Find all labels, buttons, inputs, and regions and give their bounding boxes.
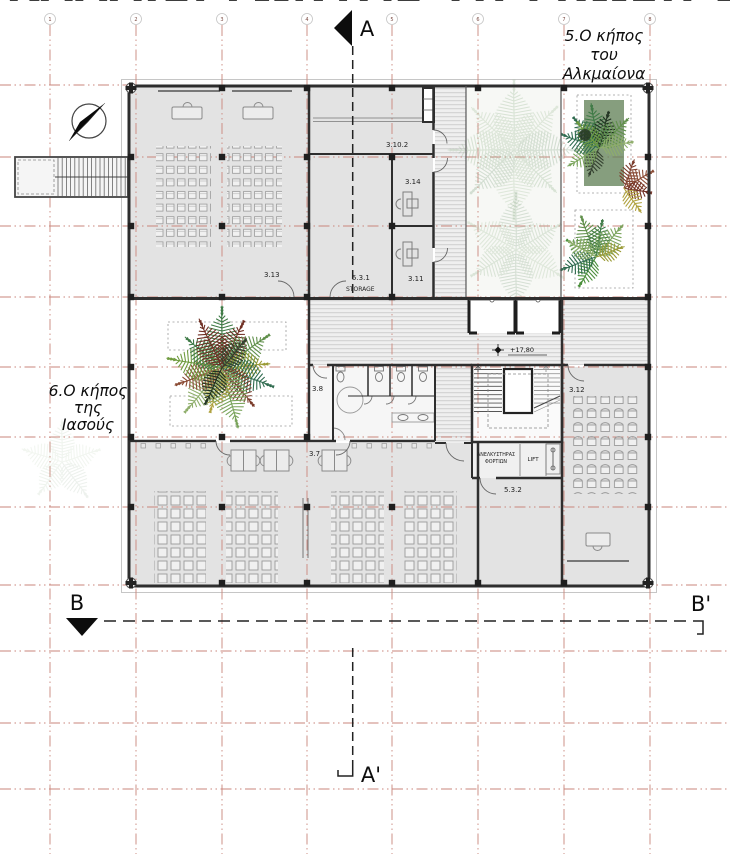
north-arrow: [69, 103, 106, 141]
grid-number-6: 6: [476, 17, 479, 23]
elevators: [469, 298, 560, 333]
seating-block: [156, 146, 211, 247]
group-table: [227, 450, 351, 471]
external-stair: [15, 157, 128, 197]
garden5-label-2: του: [590, 46, 618, 64]
storage-label: STORAGE: [346, 286, 375, 293]
room-312-label: 3.12: [569, 386, 585, 394]
grid-number-4: 4: [305, 17, 308, 23]
floor-plan-sheet: ΚΑΛΛΙΕΡΓΩΝΤΑΣ ΤΗ ΓΝΩΣΗ ΣΤΗΝ ΑΚΑΔΗΜΙΑ ΠΛΑ…: [0, 0, 730, 854]
room-531-label: 5.3.1: [352, 274, 370, 282]
garden6-label-2: της: [74, 399, 102, 417]
corridor2-hatch: [435, 365, 472, 443]
grid-number-3: 3: [220, 17, 223, 23]
seating-block: [331, 491, 384, 583]
freight-lift-label-2: ΦΟΡΤΙΩΝ: [485, 459, 507, 465]
section-b-label: B: [70, 591, 84, 615]
seating-block: [404, 491, 457, 583]
section-a-prime-label: A': [361, 763, 381, 787]
seating-block: [226, 491, 278, 583]
section-a-arrow: [334, 10, 352, 46]
garden5-label-1: 5.Ο κήπος: [565, 27, 644, 45]
room-532-fill: [478, 478, 562, 586]
room-3102-label: 3.10.2: [386, 141, 408, 149]
room-532-label: 5.3.2: [504, 486, 522, 494]
grid-number-8: 8: [648, 17, 651, 23]
level-value: +17,80: [510, 346, 534, 354]
grid-number-7: 7: [562, 17, 565, 23]
section-marker-b: B B': [66, 591, 711, 636]
room-3102-fill: [309, 86, 433, 154]
grid-number-1: 1: [48, 17, 51, 23]
room-311-label: 3.11: [408, 275, 424, 283]
section-b-prime-label: B': [691, 592, 711, 616]
garden6-label-1: 6.Ο κήπος: [49, 382, 128, 400]
section-b-arrow: [66, 618, 98, 636]
grid-number-2: 2: [134, 17, 137, 23]
garden5-label-3: Αλκμαίονα: [562, 65, 646, 83]
seating-block: [154, 491, 206, 583]
floor-plan-svg: 1 2 3 4 5 6 7 8: [0, 0, 730, 854]
room-38-label: 3.8: [312, 385, 323, 393]
room-314-label: 3.14: [405, 178, 421, 186]
room-37-label: 3.7: [309, 450, 320, 458]
grid-number-5: 5: [390, 17, 393, 23]
section-a-label: A: [360, 17, 375, 41]
room-313-label: 3.13: [264, 271, 280, 279]
seating-block: [227, 146, 282, 247]
toilets-fill: [311, 365, 435, 441]
lift-label: LIFT: [527, 457, 539, 463]
room-531-fill: [309, 154, 392, 297]
freight-lift-label-1: ΑΝΕΛΚΥΣΤΗΡΑΣ: [477, 452, 515, 458]
seating-block: [571, 396, 639, 494]
corridor-hatch: [435, 88, 466, 297]
garden6-label-3: Ιασούς: [62, 416, 114, 434]
